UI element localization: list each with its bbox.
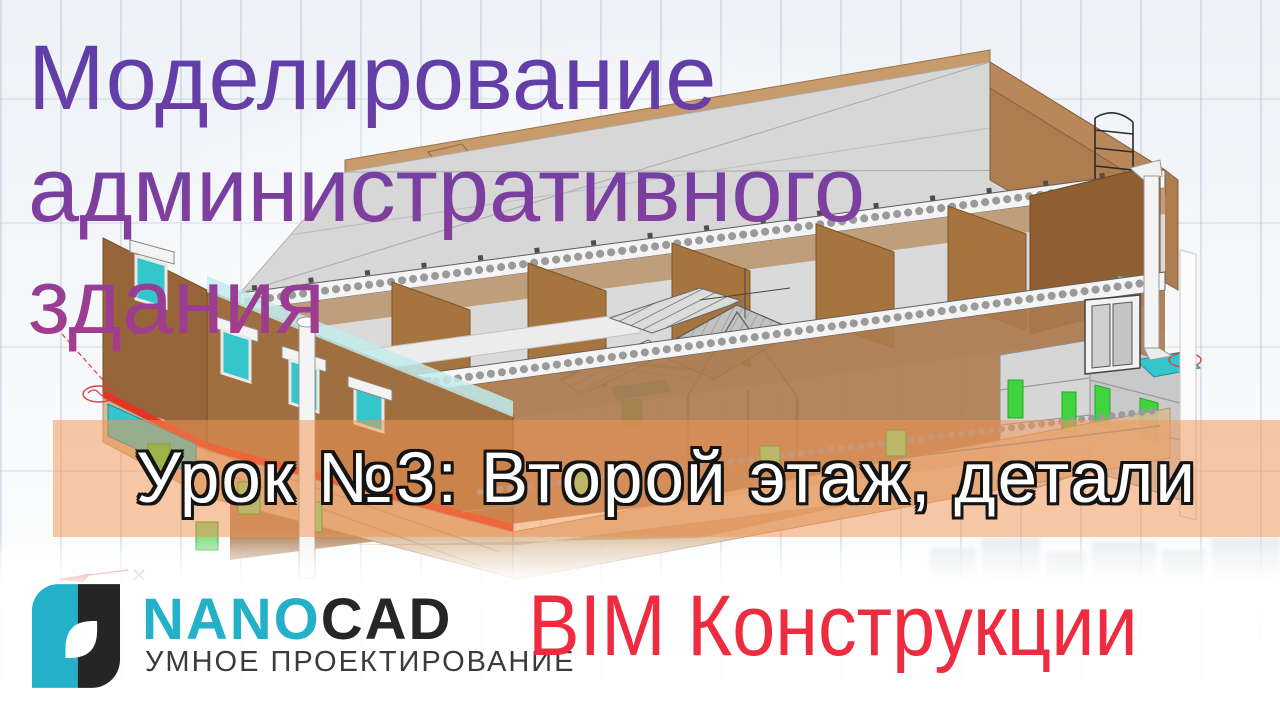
wordmark-nano: NANO [142,587,321,652]
title-line-3: здания [28,246,865,358]
title-line-2: административного [28,134,865,246]
nanocad-logo-icon [32,584,120,688]
title-line-1: Моделирование [28,22,865,134]
wordmark-cad: CAD [321,587,453,652]
lesson-banner-label: Урок №3: Второй этаж, детали [136,438,1197,519]
bim-product-label: BIM Конструкции [528,577,1138,676]
nanocad-wordmark: NANOCAD [142,586,452,653]
page-title: Моделирование административного здания [28,22,865,358]
lesson-banner: Урок №3: Второй этаж, детали [53,420,1280,537]
nanocad-tagline: УМНОЕ ПРОЕКТИРОВАНИЕ [145,646,576,679]
